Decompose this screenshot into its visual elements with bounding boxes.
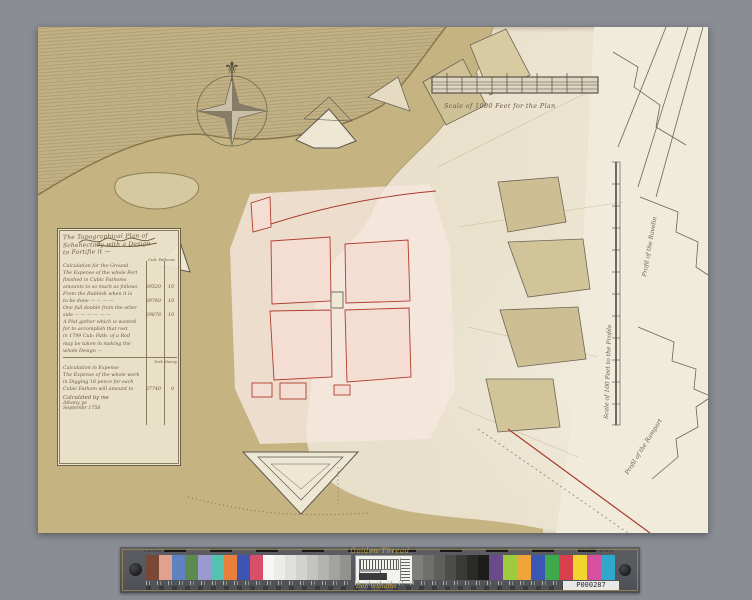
density-block [359,573,387,580]
cartouche: The Topographical Plan ofSchenectady wit… [57,228,181,466]
color-patch [340,555,351,580]
right-color-patches [489,555,615,580]
color-patch [263,555,274,580]
color-patch [224,555,237,580]
color-patch [412,555,423,580]
color-patch [172,555,185,580]
resolution-target [355,555,413,584]
color-patch [559,555,573,580]
gray-ramp [263,555,351,580]
color-patch [159,555,172,580]
color-patch [445,555,456,580]
brand-script: Golden Thread [120,547,640,555]
color-patch [545,555,559,580]
color-patch [329,555,340,580]
color-patch [285,555,296,580]
registration-dot-left [129,563,142,576]
date-line: Septembr 1756 [63,406,177,411]
plate-id-label: P000287 [563,581,619,590]
color-patch [489,555,503,580]
dark-ramp [412,555,489,580]
color-patch [531,555,545,580]
color-patch [517,555,531,580]
signature-flourish [77,233,163,247]
color-patch [587,555,601,580]
column-header-2: York Money [63,357,177,364]
color-patch [503,555,517,580]
color-patch [274,555,285,580]
color-patch [198,555,211,580]
color-patch [478,555,489,580]
color-patch [423,555,434,580]
cartouche-table-2: Calculation in ExpenseThe Expense of the… [63,365,177,393]
color-patch [467,555,478,580]
east-outworks [486,177,590,432]
column-header: Cub: Fathoms [63,257,175,262]
color-patch [434,555,445,580]
resolution-pattern [400,558,410,581]
cartouche-table: Calculation for the GroundThe Expense of… [63,263,177,355]
color-patch [185,555,198,580]
left-color-patches [146,555,263,580]
town-blocks [230,184,455,444]
color-patch [573,555,587,580]
color-patch [296,555,307,580]
plan-scale-caption: Scale of 1000 Feet for the Plan [444,102,556,110]
digitization-stage: ⚜ Scale of 1000 Feet for the Plan Scale … [0,0,752,600]
fleur-de-lis-icon: ⚜ [224,58,240,79]
color-patch [237,555,250,580]
color-patch [456,555,467,580]
color-patch [211,555,224,580]
calibration-target: inches centimeters Golden Thread Don Wil… [120,547,640,593]
map-sheet: ⚜ Scale of 1000 Feet for the Plan Scale … [38,27,708,533]
color-patch [146,555,159,580]
color-patch [250,555,263,580]
color-patch [318,555,329,580]
registration-dot-right [619,564,631,576]
color-patch [307,555,318,580]
color-patch [601,555,615,580]
maker-script: Don Williams [356,583,396,590]
